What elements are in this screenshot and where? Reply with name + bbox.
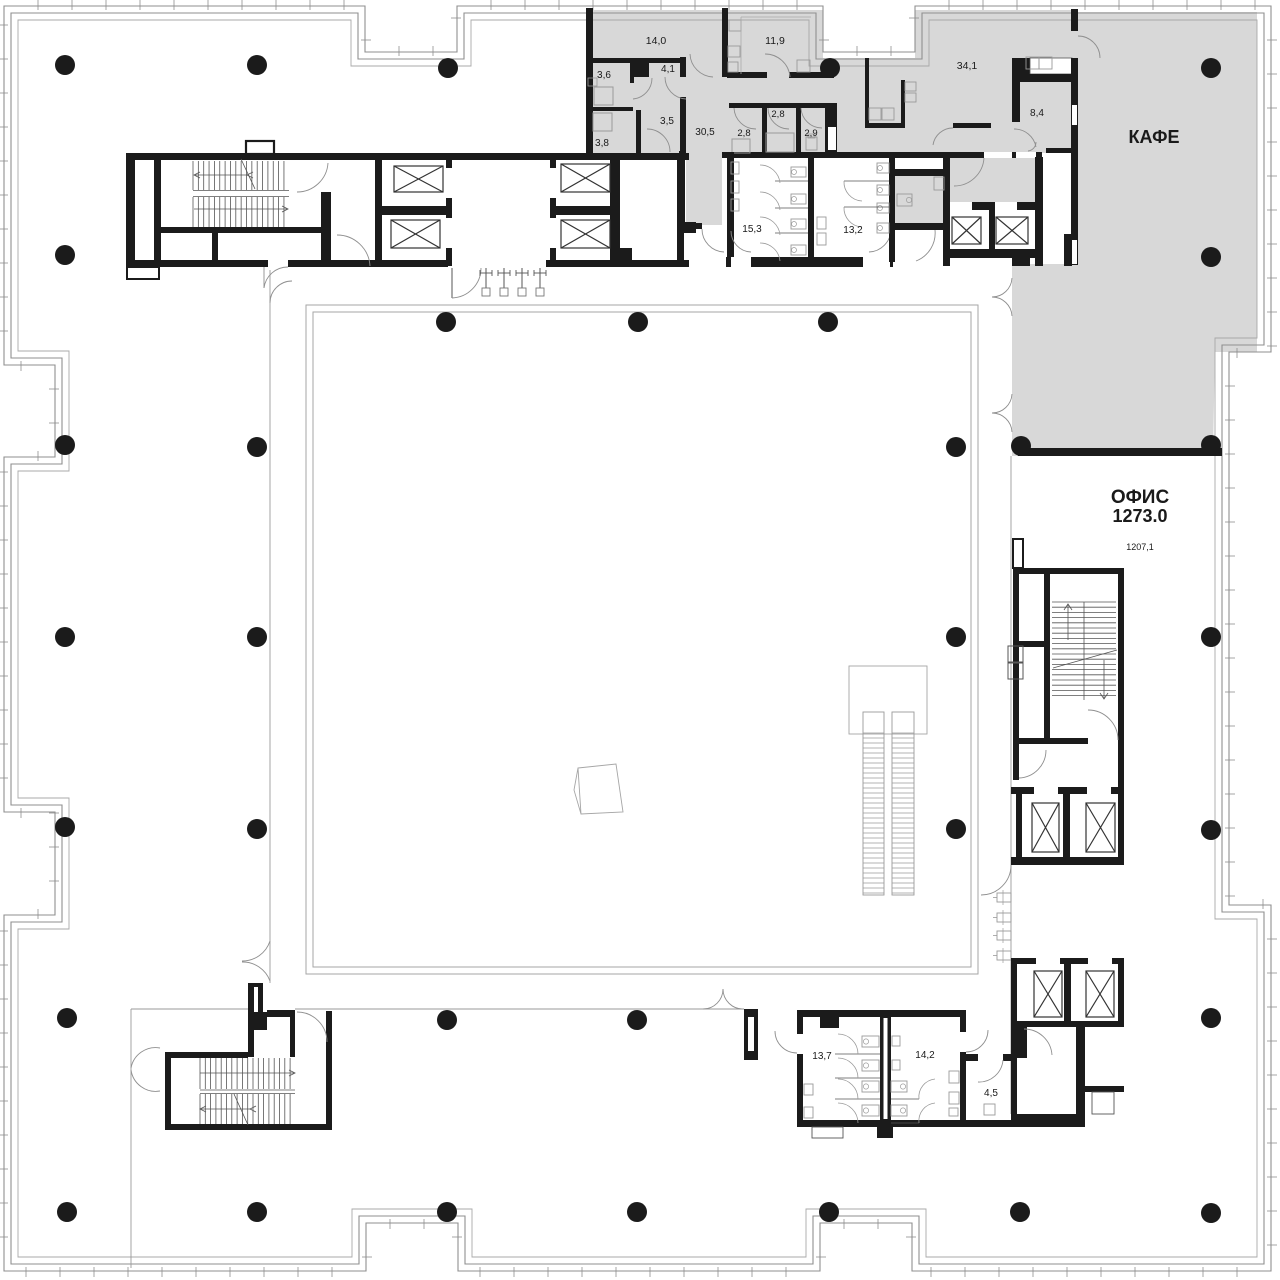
svg-text:3,8: 3,8 — [595, 138, 609, 149]
svg-text:4,1: 4,1 — [661, 64, 675, 75]
svg-text:15,3: 15,3 — [742, 224, 762, 235]
svg-text:3,6: 3,6 — [597, 70, 611, 81]
svg-text:13,2: 13,2 — [843, 225, 863, 236]
svg-text:2,9: 2,9 — [804, 128, 817, 139]
svg-text:1207,1: 1207,1 — [1126, 542, 1154, 552]
svg-text:КАФЕ: КАФЕ — [1129, 127, 1180, 147]
svg-text:2,8: 2,8 — [771, 109, 784, 120]
svg-text:30,5: 30,5 — [695, 127, 715, 138]
svg-text:14,0: 14,0 — [646, 35, 667, 47]
svg-text:34,1: 34,1 — [957, 60, 978, 72]
svg-text:2,8: 2,8 — [737, 128, 750, 139]
svg-text:14,2: 14,2 — [915, 1050, 935, 1061]
svg-text:11,9: 11,9 — [765, 35, 785, 47]
svg-text:4,5: 4,5 — [984, 1088, 998, 1099]
svg-text:ОФИС: ОФИС — [1111, 487, 1170, 508]
svg-text:13,7: 13,7 — [812, 1051, 832, 1062]
svg-text:8,4: 8,4 — [1030, 108, 1044, 119]
svg-text:1273.0: 1273.0 — [1112, 506, 1167, 526]
svg-text:3,5: 3,5 — [660, 116, 674, 127]
